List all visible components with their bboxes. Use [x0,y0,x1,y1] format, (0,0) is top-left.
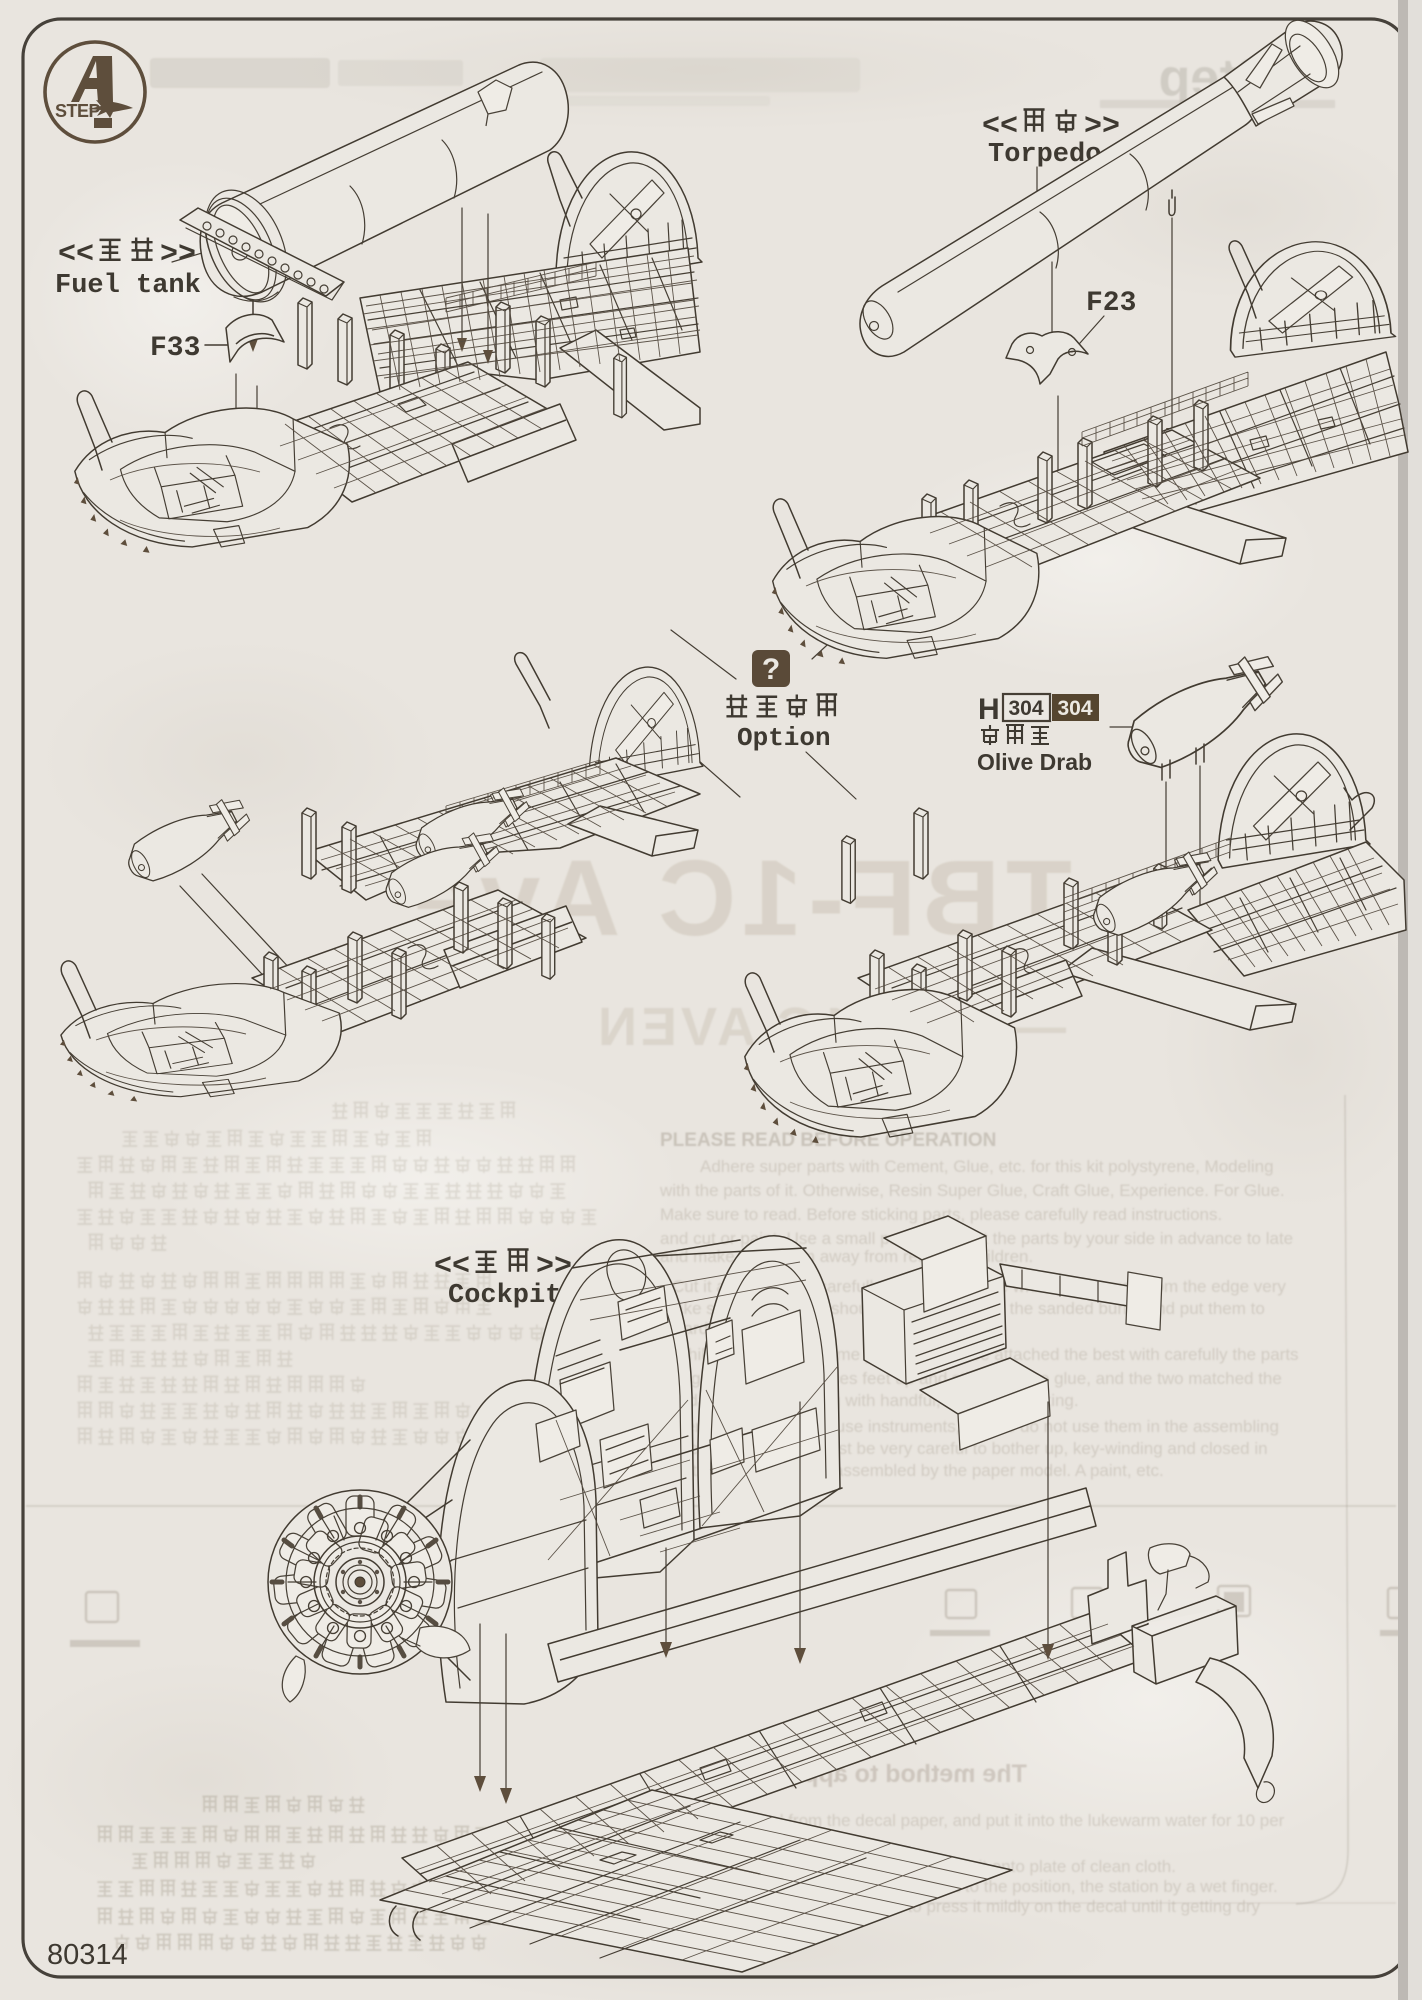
svg-text:Cockpit: Cockpit [448,1281,561,1311]
svg-text:Option: Option [737,723,831,753]
svg-text:with the parts of it. Otherwis: with the parts of it. Otherwise, Resin S… [659,1181,1285,1200]
svg-text:<<: << [982,110,1018,144]
svg-text:H: H [978,693,1000,726]
svg-text:>>: >> [1084,110,1120,144]
svg-text:>>: >> [160,238,196,272]
svg-text:STEP: STEP [55,101,101,121]
svg-text:<<: << [58,238,94,272]
svg-text:Fuel tank: Fuel tank [55,271,201,301]
svg-text:?: ? [762,653,780,686]
svg-text:F23: F23 [1086,288,1136,319]
svg-text:<<: << [434,1250,470,1284]
svg-text:80314: 80314 [47,1939,128,1971]
svg-text:F33: F33 [150,333,200,364]
svg-text:Adhere super parts with Cement: Adhere super parts with Cement, Glue, et… [700,1157,1274,1176]
svg-text:304: 304 [1057,697,1092,720]
svg-text:Olive Drab: Olive Drab [977,749,1092,775]
svg-text:304: 304 [1008,697,1043,720]
